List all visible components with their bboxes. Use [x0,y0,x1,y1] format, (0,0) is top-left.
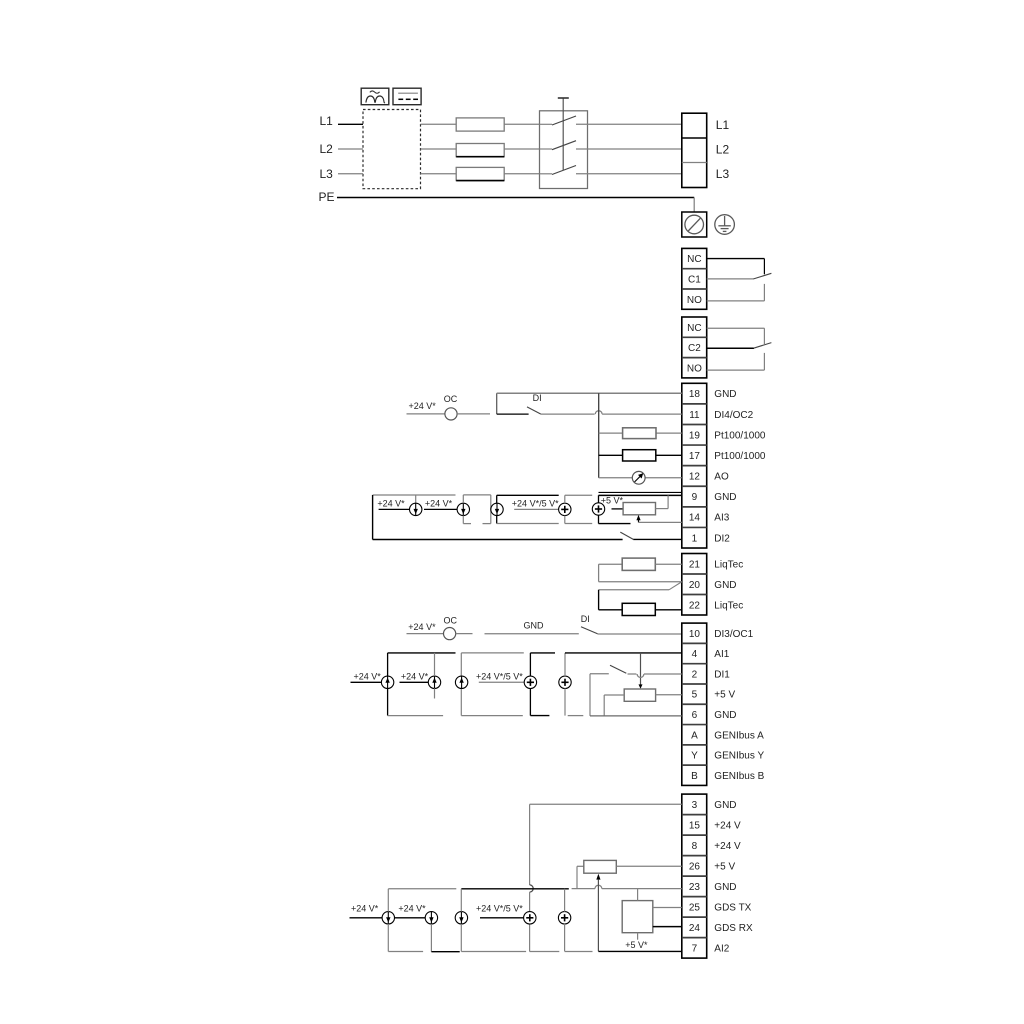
svg-text:B: B [691,771,698,782]
svg-text:GND: GND [714,492,736,503]
svg-text:AI2: AI2 [714,943,729,954]
svg-text:GDS TX: GDS TX [714,902,751,913]
svg-text:OC: OC [444,615,458,625]
svg-text:18: 18 [689,389,701,400]
svg-text:+24 V*/5 V*: +24 V*/5 V* [476,904,523,914]
svg-text:+24 V*: +24 V* [354,671,382,681]
svg-text:+5 V*: +5 V* [625,940,648,950]
svg-text:2: 2 [692,669,698,680]
svg-text:+24 V*: +24 V* [398,904,426,914]
svg-text:L2: L2 [716,142,730,156]
svg-text:26: 26 [689,861,701,872]
svg-text:DI: DI [581,614,590,624]
svg-text:+24 V*: +24 V* [351,904,379,914]
svg-text:3: 3 [692,800,698,811]
svg-text:15: 15 [689,820,701,831]
svg-text:AI1: AI1 [714,649,729,660]
svg-text:14: 14 [689,513,701,524]
svg-text:GND: GND [714,710,736,721]
svg-text:L2: L2 [320,142,334,156]
svg-text:NC: NC [687,254,701,265]
svg-text:GDS RX: GDS RX [714,923,753,934]
svg-text:Pt100/1000: Pt100/1000 [714,451,766,462]
svg-text:OC: OC [444,394,458,404]
svg-text:+24 V: +24 V [714,820,741,831]
svg-text:+24 V: +24 V [714,841,741,852]
svg-text:6: 6 [692,710,698,721]
svg-text:DI3/OC1: DI3/OC1 [714,629,753,640]
svg-text:+24 V*: +24 V* [409,401,437,411]
svg-text:+24 V*: +24 V* [425,498,453,508]
svg-text:11: 11 [689,410,700,421]
svg-text:10: 10 [689,629,701,640]
svg-text:+5 V: +5 V [714,861,735,872]
svg-text:8: 8 [692,841,698,852]
svg-text:24: 24 [689,923,701,934]
svg-text:+24 V*: +24 V* [377,498,405,508]
svg-text:LiqTec: LiqTec [714,559,743,570]
svg-text:22: 22 [689,600,701,611]
svg-text:GND: GND [714,389,736,400]
svg-text:25: 25 [689,902,701,913]
svg-text:12: 12 [689,472,701,483]
svg-text:17: 17 [689,451,701,462]
svg-text:GENIbus B: GENIbus B [714,771,764,782]
svg-text:23: 23 [689,882,701,893]
svg-text:GENIbus A: GENIbus A [714,730,764,741]
svg-text:Y: Y [691,751,698,762]
svg-text:C2: C2 [688,343,701,354]
svg-text:GND: GND [524,621,545,631]
svg-text:DI1: DI1 [714,669,730,680]
svg-text:+24 V*: +24 V* [408,622,436,632]
svg-text:GENIbus Y: GENIbus Y [714,751,764,762]
svg-text:NO: NO [687,295,702,306]
svg-text:NC: NC [687,323,701,334]
svg-text:DI: DI [533,393,542,403]
svg-text:DI4/OC2: DI4/OC2 [714,410,753,421]
svg-text:+24 V*/5 V*: +24 V*/5 V* [476,671,523,681]
svg-text:L1: L1 [320,114,334,128]
svg-text:NO: NO [687,363,702,374]
svg-text:4: 4 [692,649,698,660]
svg-text:L1: L1 [716,118,730,132]
svg-text:5: 5 [692,690,698,701]
svg-text:+24 V*/5 V*: +24 V*/5 V* [512,498,559,508]
svg-text:GND: GND [714,800,736,811]
svg-text:LiqTec: LiqTec [714,600,743,611]
svg-text:GND: GND [714,882,736,893]
svg-text:DI2: DI2 [714,533,730,544]
svg-text:GND: GND [714,580,736,591]
svg-text:19: 19 [689,430,701,441]
svg-text:+5 V*: +5 V* [601,495,624,505]
svg-text:PE: PE [319,190,335,204]
svg-text:L3: L3 [716,167,730,181]
svg-text:L3: L3 [320,167,334,181]
svg-text:21: 21 [689,559,701,570]
svg-text:1: 1 [692,533,698,544]
svg-text:Pt100/1000: Pt100/1000 [714,430,766,441]
svg-text:9: 9 [692,492,698,503]
svg-text:20: 20 [689,580,701,591]
svg-text:C1: C1 [688,274,701,285]
svg-text:AI3: AI3 [714,513,729,524]
svg-text:7: 7 [692,943,698,954]
svg-text:AO: AO [714,472,729,483]
svg-text:+5 V: +5 V [714,690,735,701]
svg-text:A: A [691,730,698,741]
svg-text:+24 V*: +24 V* [401,671,429,681]
